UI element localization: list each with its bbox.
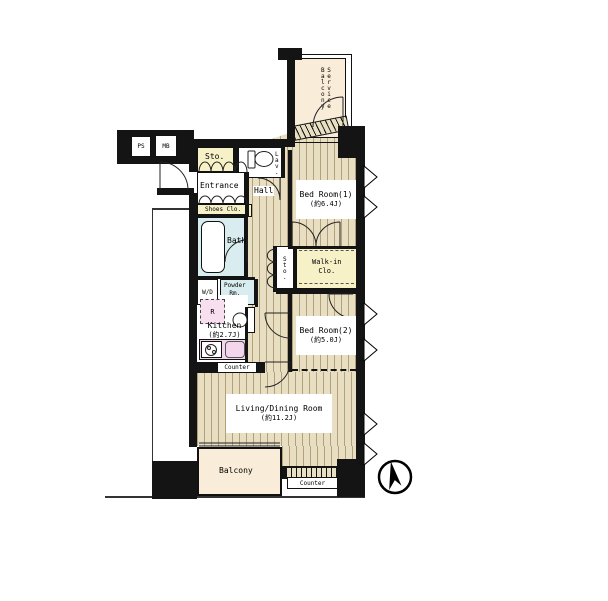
meter-box-label2: MB [162, 143, 169, 150]
bed-room-2-size: (約5.0J) [297, 336, 355, 345]
walkin-hanger-top [299, 250, 354, 251]
living-dining-size: (約11.2J) [227, 414, 331, 423]
bed-room-1-size: (約6.4J) [297, 200, 355, 209]
bed2-living-partition [292, 369, 356, 371]
bed-room-1-label: Bed Room(1) (約6.4J) [296, 180, 356, 219]
walk-in-closet-label: Walk-in Clo. [311, 258, 343, 276]
wall-sb-left [287, 52, 295, 147]
window-icon [364, 303, 377, 325]
window-icon [364, 443, 377, 465]
storage-hall-label: Sto. [280, 254, 288, 282]
wall-corner-bottom-right [337, 459, 365, 497]
wall-corner-top-right [338, 126, 365, 158]
floor-plan: W/D R PS MB Counter Counter [0, 0, 608, 601]
pillar-balcony-left [152, 461, 197, 499]
wall-hall-bed2 [288, 294, 292, 372]
wall-left-lower [189, 193, 197, 447]
bed-room-1-name: Bed Room(1) [300, 190, 353, 199]
kitchen-counter-label: Counter [224, 364, 249, 371]
window-icon [364, 196, 377, 218]
living-dining-label: Living/Dining Room (約11.2J) [226, 394, 332, 433]
bathtub [201, 221, 225, 273]
wall-walkin-left [273, 246, 276, 292]
living-counter-label: Counter [300, 480, 325, 487]
site-line-bottom [105, 496, 365, 498]
kitchen-counter-label-box: Counter [217, 362, 257, 373]
wall-bath-right [245, 217, 248, 277]
wall-hallsto-divider [293, 246, 296, 290]
entrance-label: Entrance [199, 181, 240, 191]
kitchen-label: Kitchen (約2.7J) [201, 311, 248, 350]
window-icon [364, 339, 377, 361]
storage-entrance-label: Sto. [204, 152, 225, 162]
wall-powder-right [255, 279, 258, 307]
bath-label: Bath [226, 236, 247, 246]
north-arrow-icon [379, 461, 411, 493]
washer-dryer-label: W/D [202, 289, 213, 296]
balcony-label: Balcony [218, 466, 254, 476]
living-counter-label-box: Counter [287, 477, 338, 489]
hall-label: Hall [253, 186, 274, 196]
wall-lav-right [281, 147, 285, 178]
wall-left-upper [189, 147, 197, 172]
powder-room-label: Powder Rm. [223, 282, 247, 297]
window-icon [364, 166, 377, 188]
walkin-hanger-bottom [299, 283, 354, 284]
bed-room-2-label: Bed Room(2) (約5.0J) [296, 316, 356, 355]
kitchen-name: Kitchen [208, 321, 242, 330]
bed-room-2-name: Bed Room(2) [300, 326, 353, 335]
window-icon [364, 413, 377, 435]
living-south-sill [286, 468, 336, 477]
wall-sb-top-chunk [278, 48, 302, 60]
service-balcony-label: Service Balcony [318, 62, 333, 114]
living-dining-name: Living/Dining Room [236, 404, 323, 413]
wall-bed1-bottom [288, 246, 360, 249]
wall-bath-top [197, 214, 248, 217]
meter-box: MB [155, 135, 177, 157]
kitchen-size: (約2.7J) [202, 331, 247, 340]
site-line-left [152, 210, 153, 462]
lavatory-label: Lav. [272, 150, 280, 176]
shoes-closet-label: Shoes Clo. [204, 206, 242, 214]
entrance-door-arc [160, 162, 188, 190]
wall-right [356, 126, 365, 479]
pipe-space-label: PS [137, 143, 144, 150]
site-line-step [152, 208, 190, 210]
pipe-space-box: PS [131, 136, 151, 157]
wall-entrance-right [245, 172, 249, 217]
wall-top [190, 139, 292, 147]
wall-sto-lav-divider [233, 147, 238, 172]
wall-hall-bed1 [288, 150, 292, 246]
